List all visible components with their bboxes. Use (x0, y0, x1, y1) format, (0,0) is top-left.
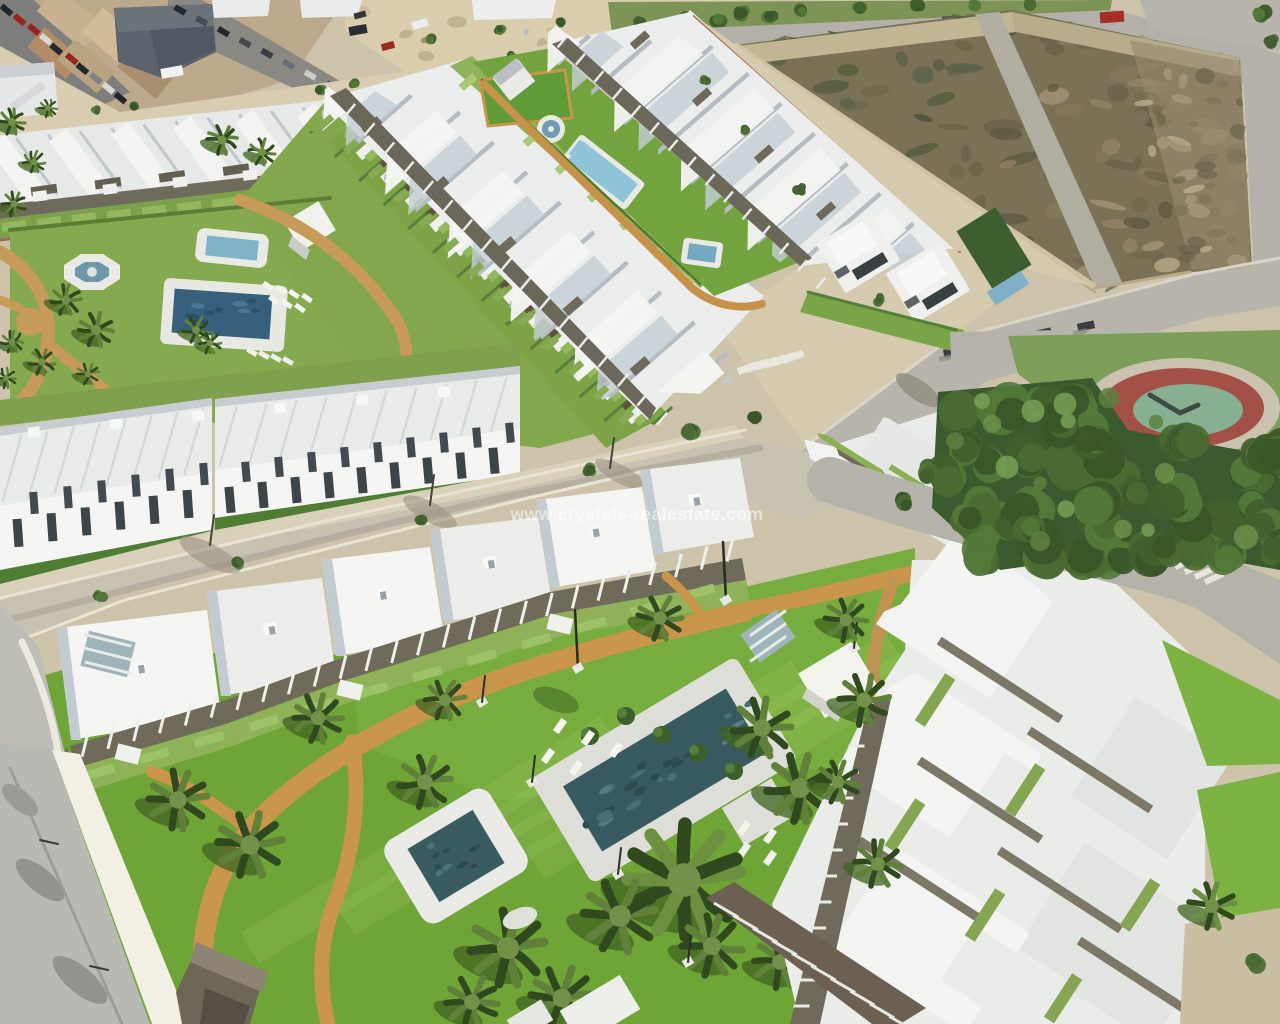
svg-text:www.crystals-realestate.com: www.crystals-realestate.com (509, 504, 763, 524)
